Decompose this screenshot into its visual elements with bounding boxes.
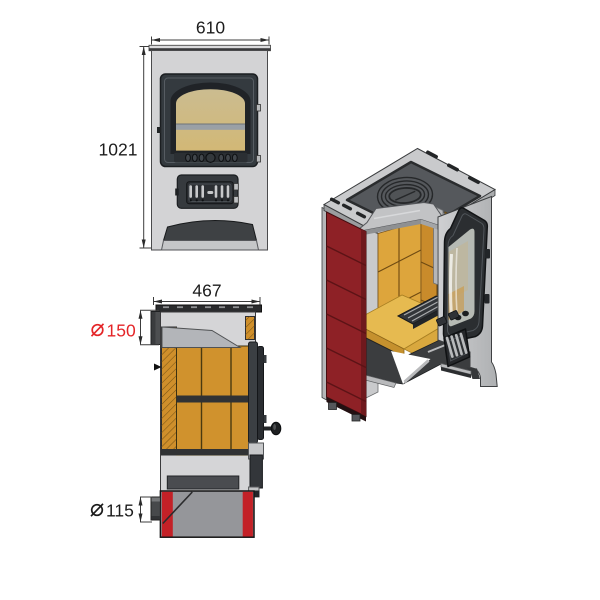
svg-text:610: 610 [196,18,225,38]
svg-text:1021: 1021 [99,140,138,160]
svg-text:467: 467 [192,281,221,301]
svg-text:115: 115 [106,500,134,520]
svg-text:150: 150 [107,320,136,340]
